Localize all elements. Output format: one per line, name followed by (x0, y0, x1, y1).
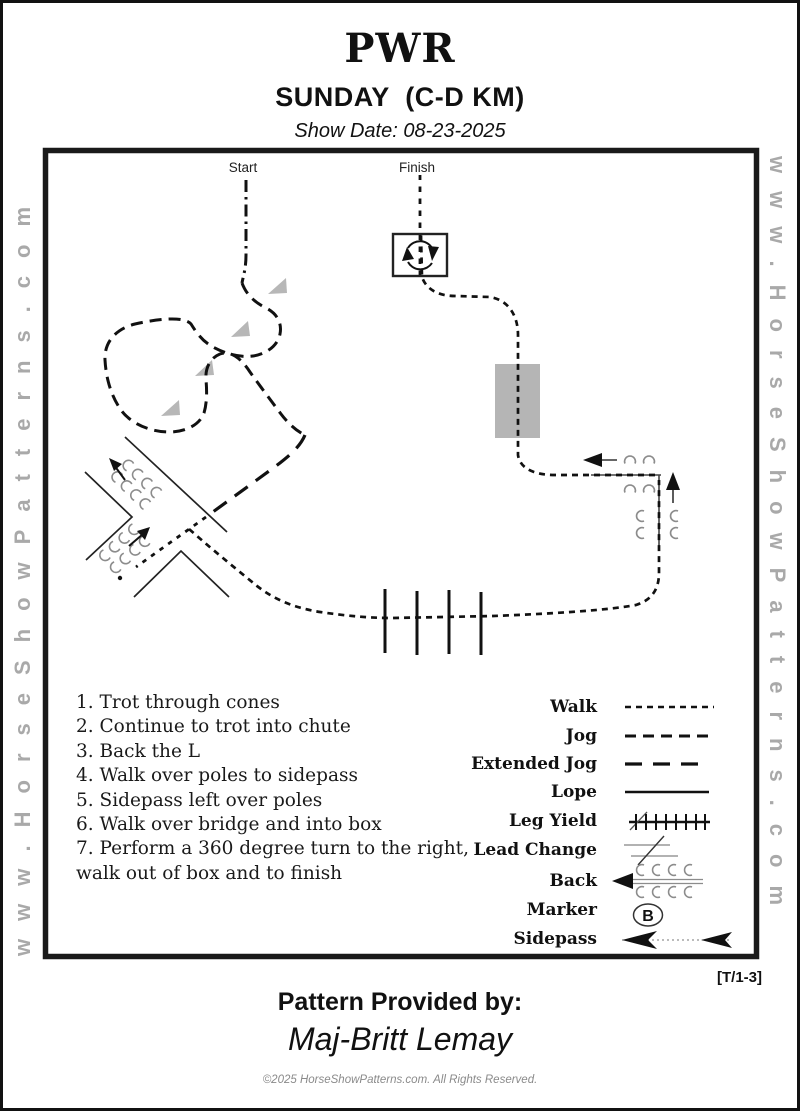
cone-icon (268, 278, 287, 294)
provided-by-label: Pattern Provided by: (3, 988, 797, 1017)
legend-label-marker: Marker (527, 900, 597, 920)
legend-label-lope: Lope (551, 782, 597, 802)
instruction-item: 5. Sidepass left over poles (76, 789, 480, 813)
cone-markers (161, 278, 287, 416)
instruction-item: 1. Trot through cones (76, 691, 480, 715)
chute-entry-end (136, 517, 206, 567)
halt-dot (118, 576, 122, 580)
legend-label-jog: Jog (566, 726, 597, 746)
provider-name: Maj-Britt Lemay (3, 1021, 797, 1058)
turn-arrowhead-right (428, 246, 439, 261)
walk-path-bridge (421, 235, 655, 475)
course-diagram: Start Finish (3, 3, 800, 1111)
sidepass-hoofprints (625, 456, 678, 538)
instruction-item: 3. Back the L (76, 740, 480, 764)
legend-lead-change (624, 836, 678, 865)
turn-arrowhead-left (402, 247, 414, 261)
legend-label-lead-change: Lead Change (473, 840, 597, 860)
start-label: Start (229, 160, 258, 175)
cone-icon (231, 321, 250, 337)
legend-samples: B (612, 707, 732, 949)
instruction-item: 7. Perform a 360 degree turn to the righ… (76, 837, 480, 886)
serpentine-jog-path (105, 283, 305, 435)
marker-letter: B (642, 908, 654, 925)
copyright-notice: ©2025 HorseShowPatterns.com. All Rights … (3, 1074, 797, 1086)
legend-label-back: Back (549, 871, 597, 891)
instruction-item: 6. Walk over bridge and into box (76, 813, 480, 837)
legend-marker: B (634, 904, 663, 926)
legend-label-walk: Walk (550, 697, 597, 717)
turn-box (393, 234, 447, 276)
legend-leg-yield (629, 812, 710, 830)
sidepass-up-arrow (666, 472, 680, 503)
finish-label: Finish (399, 160, 435, 175)
cone-icon (195, 360, 214, 376)
chute-entry-path (206, 435, 305, 517)
instruction-item: 4. Walk over poles to sidepass (76, 764, 480, 788)
start-path (242, 180, 246, 283)
legend-sidepass (622, 931, 732, 949)
ground-poles (385, 589, 481, 655)
legend-back (612, 865, 703, 898)
instruction-item: 2. Continue to trot into chute (76, 715, 480, 739)
sidepass-left-arrow (583, 453, 617, 467)
cone-icon (161, 400, 180, 416)
pattern-ref-code: [T/1-3] (717, 969, 762, 986)
walk-path-poles (189, 480, 659, 618)
instructions-list: 1. Trot through cones 2. Continue to tro… (76, 691, 480, 886)
back-l-chute (85, 437, 229, 597)
legend-label-extended-jog: Extended Jog (471, 754, 597, 774)
legend-label-sidepass: Sidepass (514, 929, 597, 949)
pattern-sheet: PWR SUNDAY (C-D KM) Show Date: 08-23-202… (0, 0, 800, 1111)
legend-label-leg-yield: Leg Yield (509, 811, 597, 831)
